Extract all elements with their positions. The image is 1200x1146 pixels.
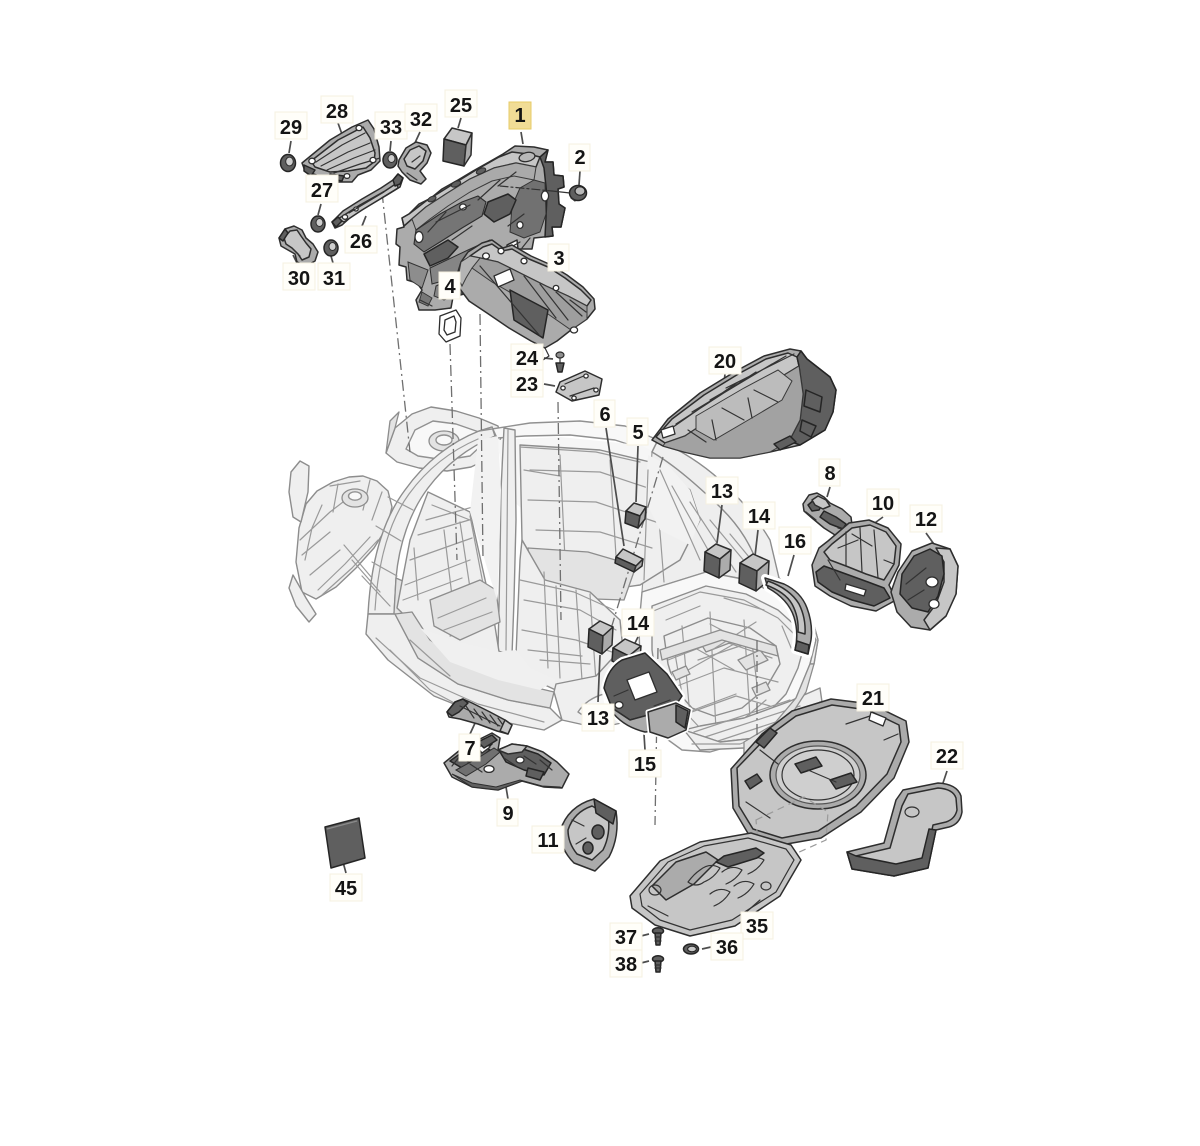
svg-text:28: 28: [326, 101, 348, 123]
svg-text:45: 45: [335, 878, 357, 900]
svg-text:4: 4: [444, 276, 456, 298]
svg-text:25: 25: [450, 95, 472, 117]
svg-text:6: 6: [599, 404, 610, 426]
svg-text:29: 29: [280, 117, 302, 139]
svg-text:23: 23: [516, 374, 538, 396]
svg-text:15: 15: [634, 754, 656, 776]
svg-text:37: 37: [615, 927, 637, 949]
svg-text:7: 7: [464, 738, 475, 760]
svg-text:8: 8: [824, 463, 835, 485]
svg-text:27: 27: [311, 180, 333, 202]
svg-text:21: 21: [862, 688, 884, 710]
svg-text:36: 36: [716, 937, 738, 959]
svg-text:26: 26: [350, 231, 372, 253]
svg-text:12: 12: [915, 509, 937, 531]
svg-text:20: 20: [714, 351, 736, 373]
svg-text:24: 24: [516, 348, 539, 370]
svg-text:33: 33: [380, 117, 402, 139]
svg-text:2: 2: [574, 147, 585, 169]
svg-text:35: 35: [746, 916, 768, 938]
svg-text:14: 14: [748, 506, 771, 528]
svg-text:11: 11: [537, 830, 558, 852]
svg-text:13: 13: [711, 481, 733, 503]
svg-text:31: 31: [323, 268, 345, 290]
svg-text:32: 32: [410, 109, 432, 131]
svg-text:22: 22: [936, 746, 958, 768]
svg-text:10: 10: [872, 493, 894, 515]
svg-text:16: 16: [784, 531, 806, 553]
svg-text:9: 9: [502, 803, 513, 825]
svg-text:14: 14: [627, 613, 650, 635]
svg-text:13: 13: [587, 708, 609, 730]
svg-text:30: 30: [288, 268, 310, 290]
svg-text:5: 5: [632, 422, 643, 444]
svg-text:38: 38: [615, 954, 637, 976]
svg-text:1: 1: [514, 105, 525, 127]
svg-text:3: 3: [553, 248, 564, 270]
